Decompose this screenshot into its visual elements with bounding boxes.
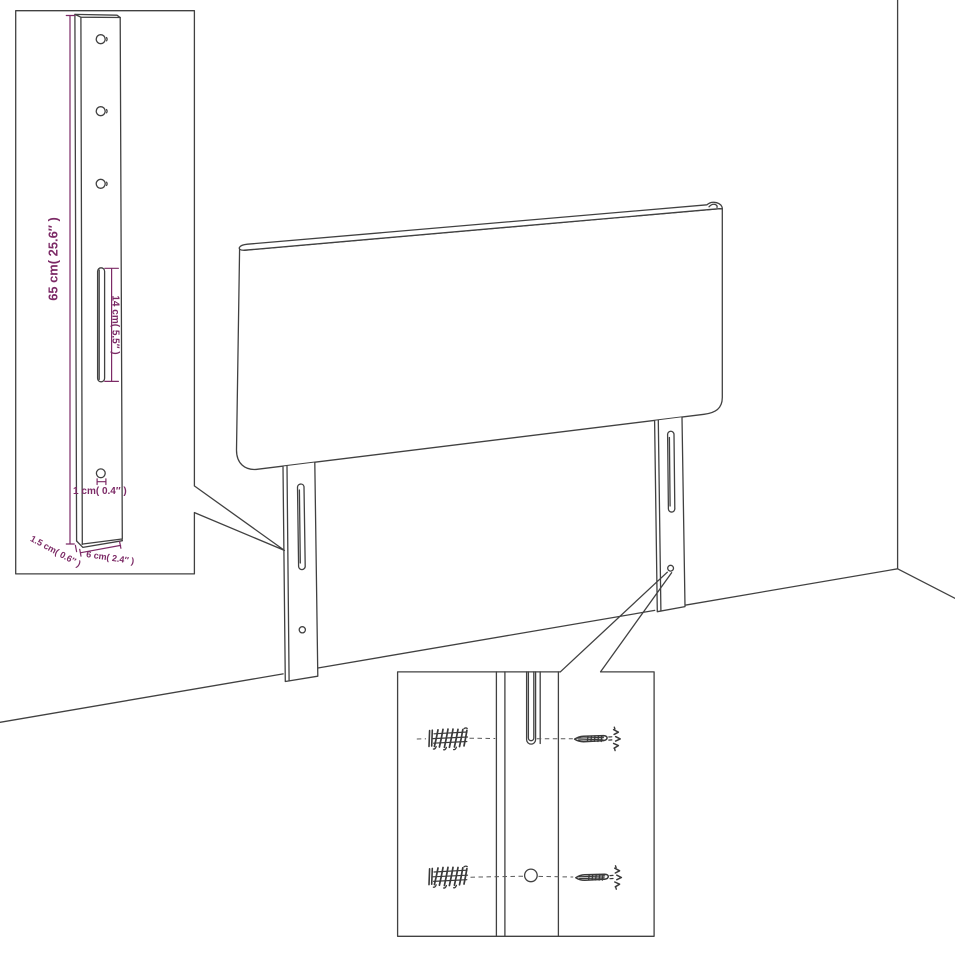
svg-text:1 cm( 0.4″ ): 1 cm( 0.4″ )	[73, 486, 127, 497]
svg-text:14 cm( 5.5″ ): 14 cm( 5.5″ )	[110, 295, 121, 354]
svg-text:65 cm( 25.6″ ): 65 cm( 25.6″ )	[45, 217, 60, 301]
